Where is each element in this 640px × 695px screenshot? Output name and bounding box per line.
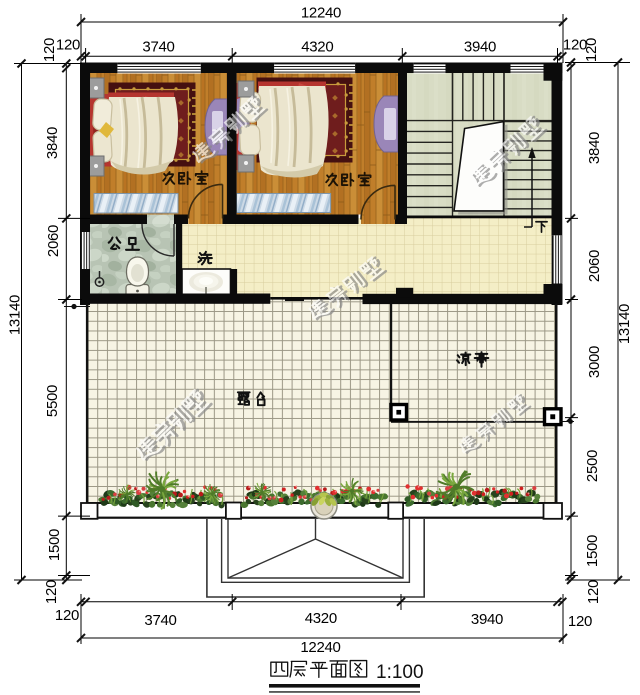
svg-text:120: 120 xyxy=(583,38,600,62)
svg-text:3940: 3940 xyxy=(464,39,496,56)
svg-text:1:100: 1:100 xyxy=(376,662,424,683)
svg-text:120: 120 xyxy=(55,607,79,624)
svg-text:3740: 3740 xyxy=(144,612,176,629)
svg-text:5500: 5500 xyxy=(44,385,61,417)
svg-text:2500: 2500 xyxy=(584,450,601,482)
svg-text:120: 120 xyxy=(568,613,592,630)
svg-text:4320: 4320 xyxy=(305,610,337,627)
svg-text:120: 120 xyxy=(56,37,80,54)
svg-text:3000: 3000 xyxy=(586,346,603,378)
svg-text:1500: 1500 xyxy=(584,535,601,567)
svg-text:12240: 12240 xyxy=(301,5,341,22)
svg-text:3840: 3840 xyxy=(44,127,61,159)
svg-text:120: 120 xyxy=(41,38,58,62)
svg-text:3840: 3840 xyxy=(586,132,603,164)
svg-text:13140: 13140 xyxy=(7,295,24,335)
svg-text:3940: 3940 xyxy=(471,611,503,628)
svg-text:3740: 3740 xyxy=(142,39,174,56)
svg-text:1500: 1500 xyxy=(46,529,63,561)
svg-text:13140: 13140 xyxy=(616,304,633,344)
svg-text:120: 120 xyxy=(43,580,60,604)
svg-text:120: 120 xyxy=(585,580,602,604)
svg-text:2060: 2060 xyxy=(45,225,62,257)
svg-text:2060: 2060 xyxy=(586,250,603,282)
svg-text:12240: 12240 xyxy=(300,639,340,656)
svg-text:4320: 4320 xyxy=(301,39,333,56)
